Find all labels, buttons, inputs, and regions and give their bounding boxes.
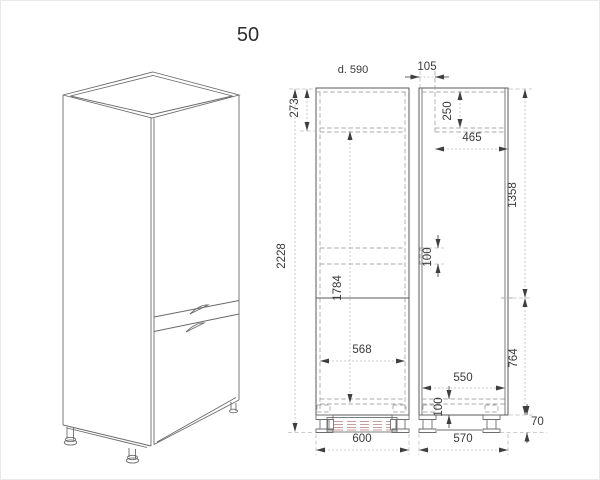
side-elevation-dimensions: 105 250 465 1358 764 100 550 100 570 [405,61,547,455]
side-front-leg-mount [485,405,498,412]
top-recess-dim-label: 250 [442,101,454,120]
plinth-left-bracket [328,420,334,431]
cabinet-3d-view [63,72,239,463]
front-inner-dashed-border [316,92,409,411]
front-carcass-outline [316,88,409,415]
total-height-dim-label: 2228 [276,243,288,269]
inner-width-dim-label: 568 [352,344,371,356]
total-height-extension-lines [288,89,315,433]
cabinet-vertical-edges [63,95,239,446]
page-title: 50 [237,24,259,46]
front-right-leg-mount [393,405,406,412]
depth-note-label: d. 590 [338,64,369,76]
width-dim-label: 600 [352,433,371,445]
top-section-dim-label: 273 [289,98,301,117]
front-left-leg-mount [317,405,330,412]
front-leg-stem [129,448,136,458]
left-leg-base [64,440,76,445]
cabinet-top-face [63,72,239,118]
cabinet-bottom-edge-right [154,398,239,445]
front-bottom-panel-lines [320,399,405,404]
body-height-dim-label: 1784 [332,275,344,301]
cabinet-top-face-inner-edge [71,76,233,115]
plinth-hatch-lines [334,422,390,431]
upper-height-dim-label: 1358 [507,182,519,208]
front-top-recess-lines [320,128,405,132]
lower-height-dim-label: 764 [508,348,520,368]
top-inner-depth-dim-label: 465 [462,132,481,144]
plinth-height-dim-label: 70 [531,416,544,428]
side-front-leg [483,415,500,433]
bottom-gap-dim-label: 100 [433,397,445,416]
inner-depth-dim-label: 550 [453,372,472,384]
depth-dim-label: 570 [453,433,472,445]
front-elevation: d. 590 [316,64,409,433]
shelf-gap-dim-label: 100 [422,247,434,266]
top-offset-dim-label: 105 [417,61,436,73]
technical-drawing-page: 50 d. 590 [0,0,600,480]
cabinet-dimension-drawing: 50 d. 590 [1,1,600,480]
front-elevation-dimensions: 2228 273 1784 568 600 [276,89,409,455]
front-shelf-band-lines [320,248,405,264]
side-back-leg [419,415,436,433]
front-leg-base [126,458,138,463]
